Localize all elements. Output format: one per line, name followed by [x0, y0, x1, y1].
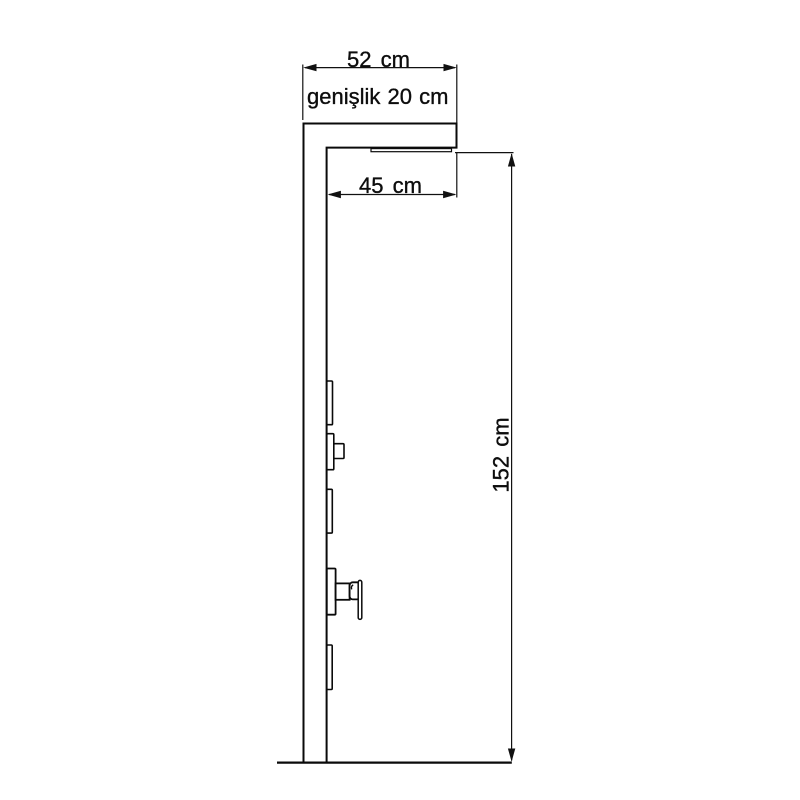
- svg-text:genişlik 20 cm: genişlik 20 cm: [307, 84, 448, 109]
- svg-text:152 cm: 152 cm: [489, 417, 514, 492]
- svg-text:45 cm: 45 cm: [359, 173, 422, 198]
